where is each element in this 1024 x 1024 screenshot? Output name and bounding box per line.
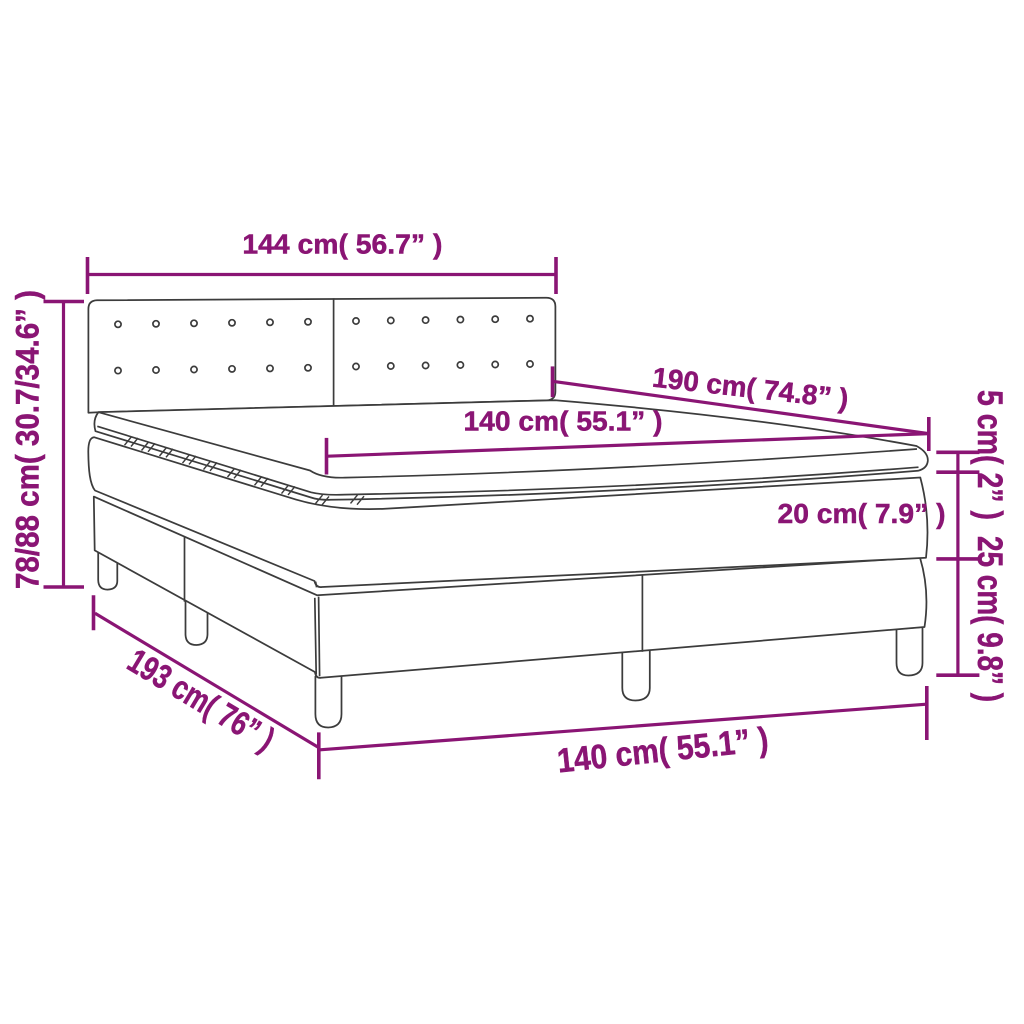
svg-text:78/88 cm( 30.7/34.6” ): 78/88 cm( 30.7/34.6” ) <box>10 290 46 589</box>
svg-text:20 cm( 7.9” ): 20 cm( 7.9” ) <box>778 498 946 529</box>
svg-text:5 cm( 2” ): 5 cm( 2” ) <box>970 390 1009 520</box>
svg-text:25 cm( 9.8” ): 25 cm( 9.8” ) <box>970 536 1009 702</box>
svg-text:144 cm( 56.7” ): 144 cm( 56.7” ) <box>242 229 442 260</box>
svg-text:140 cm( 55.1” ): 140 cm( 55.1” ) <box>464 405 663 436</box>
